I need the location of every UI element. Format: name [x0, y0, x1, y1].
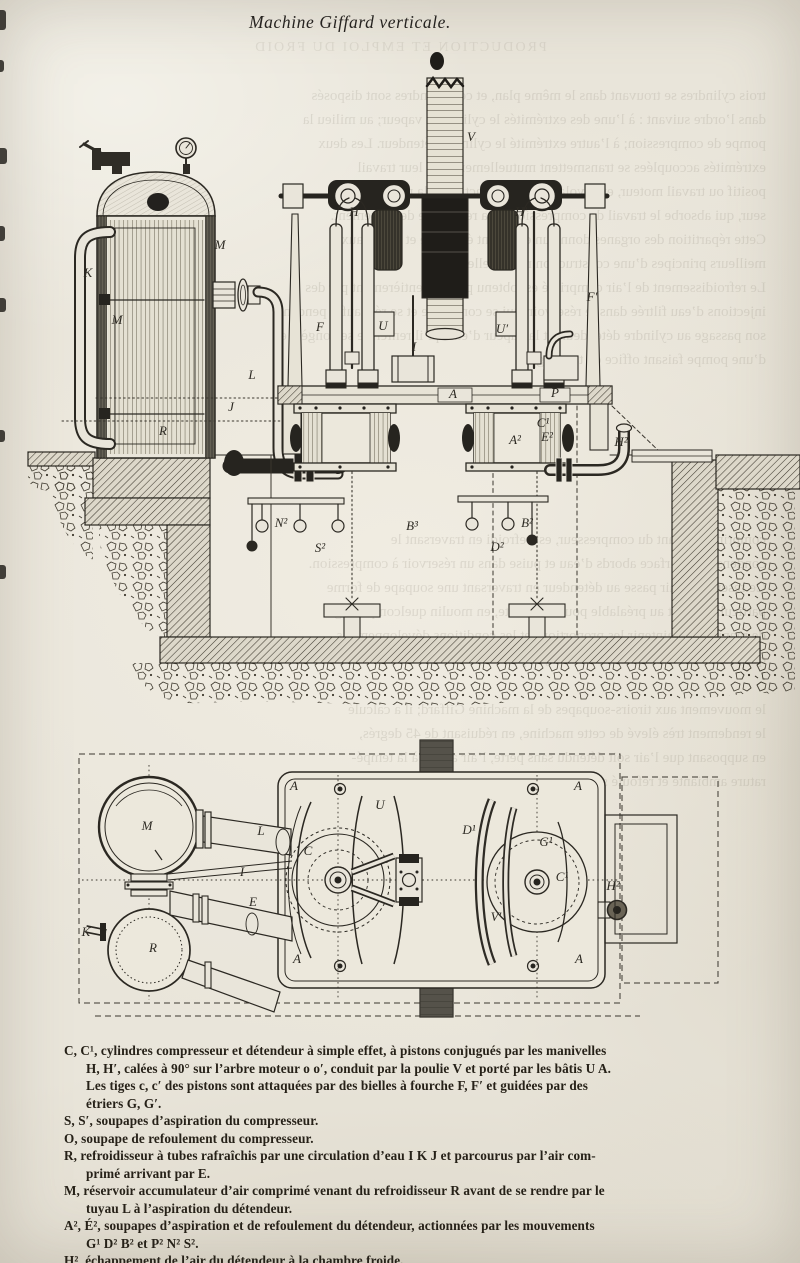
expander-cylinder: [462, 404, 574, 471]
elevation-label-E²: E²: [540, 429, 554, 444]
plan-crank-cluster: [396, 854, 422, 906]
page-edge-mark: [0, 226, 5, 241]
elevation-label-U: U: [378, 318, 389, 333]
manhole: [147, 193, 169, 211]
figure-legend: C, C¹, cylindres compresseur et détendeu…: [64, 1042, 756, 1263]
bleedthrough-line: le mouvement aux tiroirs-soupapes de la …: [60, 698, 766, 722]
plan-label-U: U: [375, 797, 386, 812]
earth-rubble: [28, 466, 795, 705]
bleedthrough-line: d’une pompe faisant office de tamisage.: [60, 348, 766, 372]
legend-line-12: G¹ D² B² et P² N² S².: [64, 1235, 756, 1253]
plan-belt-band: V: [420, 740, 453, 1017]
elevation-label-H: H: [348, 204, 359, 219]
valve-gear: [247, 496, 548, 551]
plan-exhaust-port: [598, 901, 627, 920]
legend-line-6: O, soupape de refoulement du compresseur…: [64, 1130, 756, 1148]
fork-connecting-rods: [326, 198, 564, 388]
crankshaft: [281, 180, 607, 210]
exhaust-pipe: [550, 424, 712, 482]
plan-cooler: [86, 909, 190, 991]
bleedthrough-line: dans l’ordre suivant : à l’une des extré…: [60, 108, 766, 132]
elevation-label-F: F: [315, 319, 325, 334]
bleedthrough-line: extrémités accouplées se transmettent mu…: [60, 156, 766, 180]
plan-pipes: [168, 810, 292, 1012]
bleedthrough-block-4: le mouvement aux tiroirs-soupapes de la …: [60, 698, 766, 794]
plan-expander: [479, 800, 587, 964]
bleedthrough-line: rature ambiante et refoulé sous un vol p…: [60, 770, 766, 794]
bleedthrough-line: Le refroidissement de l’air comprimé est…: [60, 276, 766, 300]
compressor-cylinder: [290, 404, 400, 471]
elevation-label-P: P: [550, 385, 559, 400]
elevation-label-S²: S²: [315, 540, 327, 555]
pressure-gauge-icon: [176, 138, 196, 174]
bleedthrough-line: de manière à maintenir les proportions e…: [60, 624, 766, 648]
pit-construction-lines: [62, 398, 662, 637]
plan-bedplate: [278, 772, 605, 988]
bleedthrough-line: injections d’eau filtrée dans le réservo…: [60, 300, 766, 324]
plan-label-K: K: [81, 924, 92, 939]
bleedthrough-block-2: trois cylindres se trouvant dans le même…: [60, 84, 766, 372]
plan-label-C: C: [304, 843, 313, 858]
plan-label-R: R: [148, 940, 157, 955]
plan-label-V′: V′: [491, 909, 502, 924]
plan-compressor: [286, 796, 404, 964]
plan-label-A: A: [573, 778, 582, 793]
plan-figure: V: [79, 740, 718, 1017]
plan-label-E: E: [248, 894, 257, 909]
elevation-label-K: K: [83, 265, 94, 280]
plan-label-A: A: [289, 778, 298, 793]
elevation-label-F′: F′: [586, 289, 598, 304]
scanned-book-page: PRODUCTION ET EMPLOI DU FROIDtrois cylin…: [0, 0, 800, 1263]
legend-line-2: H, H′, calées à 90° sur l’arbre moteur o…: [64, 1060, 756, 1078]
plan-label-C¹: C¹: [556, 869, 569, 884]
plan-label-A: A: [574, 951, 583, 966]
plan-labels: MRKLIEAAAACUC¹G¹D¹V′H²: [81, 778, 621, 966]
inlet-valve: [80, 141, 130, 174]
foundation-masonry: [28, 452, 800, 663]
plan-label-D¹: D¹: [461, 822, 475, 837]
bleedthrough-line: en supposant que l’air soit détendu sans…: [60, 746, 766, 770]
elevation-label-A²: A²: [508, 432, 522, 447]
pipework: [80, 232, 352, 482]
elevation-label-H′: H′: [514, 204, 527, 219]
bed-frame: [278, 214, 612, 454]
cooling-reservoir: [80, 138, 260, 458]
bleedthrough-line: Ce réservoir, l’air passe au détendeur e…: [60, 576, 766, 600]
legend-line-1: C, C¹, cylindres compresseur et détendeu…: [64, 1042, 756, 1060]
legend-line-4: étriers G, G′.: [64, 1095, 756, 1113]
bleedthrough-line: seur, qui absorbe le travail de compress…: [60, 204, 766, 228]
plan-label-A: A: [292, 951, 301, 966]
bleedthrough-block-1: PRODUCTION ET EMPLOI DU FROID: [70, 36, 730, 60]
legend-line-8: primé arrivant par E.: [64, 1165, 756, 1183]
plan-centerlines: [82, 765, 618, 1000]
elevation-label-H²: H²: [613, 434, 628, 449]
bleedthrough-line: PRODUCTION ET EMPLOI DU FROID: [70, 36, 730, 60]
pulley-label: V: [430, 902, 439, 916]
elevation-label-A: A: [448, 386, 457, 401]
page-edge-mark: [0, 148, 7, 164]
elevation-label-J: J: [228, 399, 235, 414]
page-edge-mark: [0, 565, 6, 579]
pit-floor-brackets: [324, 598, 565, 637]
elevation-label-B³: B³: [406, 518, 419, 533]
elevation-labels: MKMRLJVHH′UU′FF′IAPC¹A²E²H²B³N²S²D²B²: [83, 129, 629, 555]
legend-line-13: H², échappement de l’air du détendeur à …: [64, 1252, 756, 1263]
bleedthrough-line: positif ou travail moteur, et le volant …: [60, 180, 766, 204]
bleedthrough-line: son passage au cylindre détendeur, et la…: [60, 324, 766, 348]
legend-line-11: A², É², soupapes d’aspiration et de refo…: [64, 1217, 756, 1235]
plan-outline-dashed: [79, 754, 718, 1016]
plan-label-M: M: [141, 818, 154, 833]
plan-reservoir: [99, 777, 199, 896]
legend-line-7: R, refroidisseur à tubes rafraîchis par …: [64, 1147, 756, 1165]
bleedthrough-line: le rendement très élevé de cette machine…: [60, 722, 766, 746]
pulley-label-box: [421, 897, 447, 917]
bleedthrough-line: Cette répartition des organes donne un e…: [60, 228, 766, 252]
elevation-label-C¹: C¹: [537, 415, 550, 430]
elevation-label-L: L: [247, 367, 255, 382]
elevation-figure: MKMRLJVHH′UU′FF′IAPC¹A²E²H²B³N²S²D²B²: [28, 52, 800, 705]
bleedthrough-line: particulièrement au préalable pour la dé…: [60, 600, 766, 624]
elevation-label-M: M: [214, 237, 227, 252]
valve-motion-on-bed: [392, 296, 578, 382]
bleedthrough-line: condenseur à surface abords d’eau et pui…: [60, 552, 766, 576]
bleedthrough-line: pompe de compression; à l’autre extrémit…: [60, 132, 766, 156]
elevation-label-N²: N²: [274, 515, 289, 530]
legend-line-9: M, réservoir accumulateur d’air comprimé…: [64, 1182, 756, 1200]
legend-line-10: tuyau L à l’aspiration du détendeur.: [64, 1200, 756, 1218]
elevation-label-M: M: [111, 312, 124, 327]
plan-label-I: I: [239, 864, 245, 879]
bleedthrough-line: trois cylindres se trouvant dans le même…: [60, 84, 766, 108]
page-edge-mark: [0, 298, 6, 312]
bleedthrough-line: qui donnent le rendement maximum, et par: [60, 648, 766, 672]
figure-title: Machine Giffard verticale.: [0, 12, 700, 33]
belt-and-pulley: [422, 52, 468, 340]
plan-label-L: L: [256, 823, 264, 838]
plan-annex-chamber: [605, 815, 677, 943]
bleedthrough-line: meilleurs principes d’une construction r…: [60, 252, 766, 276]
page-edge-mark: [0, 430, 5, 442]
plan-label-H²: H²: [605, 878, 620, 893]
page-edge-mark: [0, 60, 4, 72]
bleedthrough-line: comprimé, sortant du compresseur, est re…: [60, 528, 766, 552]
legend-line-5: S, S′, soupapes d’aspiration du compress…: [64, 1112, 756, 1130]
elevation-label-D²: D²: [489, 539, 504, 554]
elevation-label-V: V: [467, 129, 477, 144]
bleedthrough-block-3: comprimé, sortant du compresseur, est re…: [60, 528, 766, 672]
legend-line-3: Les tiges c, c′ des pistons sont attaqué…: [64, 1077, 756, 1095]
elevation-label-R: R: [158, 423, 167, 438]
side-nozzle: [213, 279, 260, 311]
elevation-label-U′: U′: [496, 321, 508, 336]
plan-label-G¹: G¹: [539, 834, 552, 849]
elevation-label-I: I: [411, 339, 417, 354]
elevation-label-B²: B²: [521, 515, 534, 530]
